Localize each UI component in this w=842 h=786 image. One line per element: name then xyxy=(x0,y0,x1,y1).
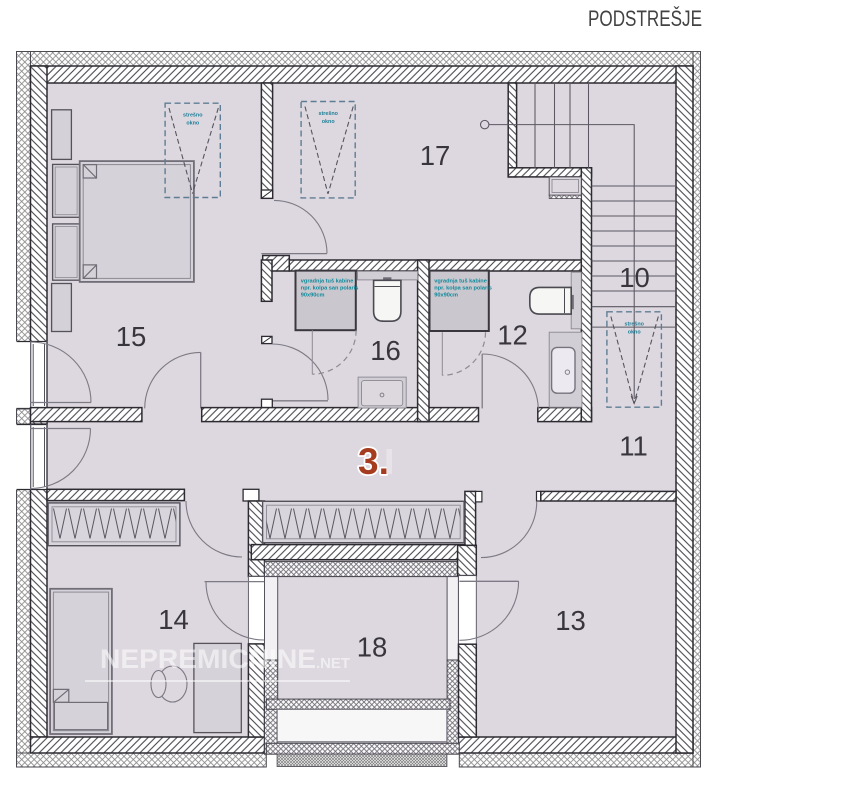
svg-text:10: 10 xyxy=(619,262,650,293)
svg-text:16: 16 xyxy=(370,335,401,366)
svg-text:vgradnja tuš kabine: vgradnja tuš kabine xyxy=(301,279,354,285)
svg-text:13: 13 xyxy=(555,605,586,636)
svg-text:vgradnja tuš kabine: vgradnja tuš kabine xyxy=(434,279,487,285)
svg-text:strešno: strešno xyxy=(318,111,338,117)
svg-text:90x90cm: 90x90cm xyxy=(301,293,325,299)
svg-text:okno: okno xyxy=(628,330,642,336)
svg-text:3.: 3. xyxy=(358,441,389,482)
svg-text:.NET: .NET xyxy=(316,655,350,672)
svg-text:okno: okno xyxy=(186,121,200,127)
svg-text:npr. kolpa san polaris: npr. kolpa san polaris xyxy=(301,286,359,292)
svg-text:14: 14 xyxy=(158,604,189,635)
svg-text:90x90cm: 90x90cm xyxy=(434,293,458,299)
svg-text:npr. kolpa san polaris: npr. kolpa san polaris xyxy=(434,286,492,292)
svg-text:okno: okno xyxy=(322,119,336,125)
svg-text:15: 15 xyxy=(116,321,147,352)
svg-text:NEPREMICNINE: NEPREMICNINE xyxy=(100,644,316,674)
svg-text:PODSTREŠJE: PODSTREŠJE xyxy=(588,6,702,31)
svg-text:strešno: strešno xyxy=(183,113,203,119)
svg-text:strešno: strešno xyxy=(624,322,644,328)
svg-text:11: 11 xyxy=(619,431,648,462)
svg-text:18: 18 xyxy=(357,631,388,662)
svg-text:12: 12 xyxy=(497,319,528,350)
svg-text:17: 17 xyxy=(420,140,451,171)
